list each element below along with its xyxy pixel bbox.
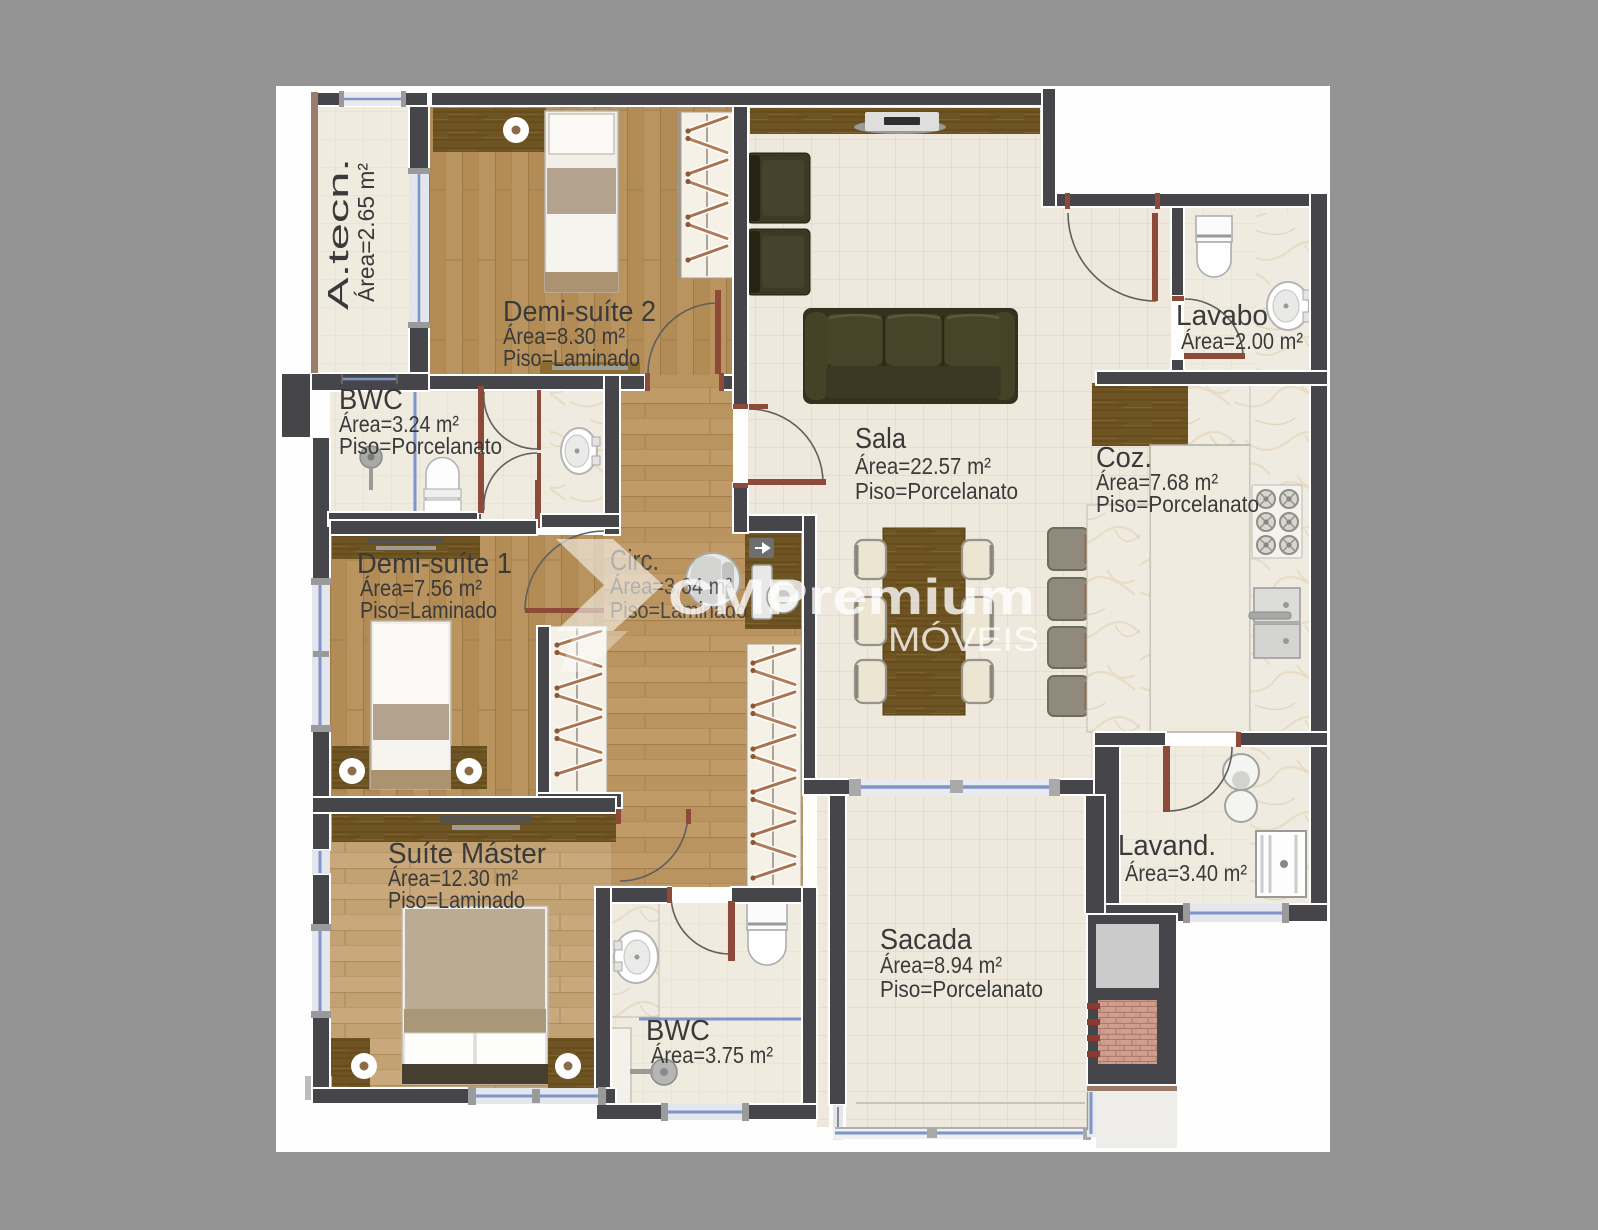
svg-text:Área=22.57 m²: Área=22.57 m² [855,453,991,479]
svg-text:MÓVEIS: MÓVEIS [888,621,1039,659]
svg-text:Lavand.: Lavand. [1118,830,1216,862]
svg-text:Piso=Porcelanato: Piso=Porcelanato [339,433,502,459]
svg-text:CMPremium: CMPremium [668,569,1035,625]
svg-text:Área=3.40 m²: Área=3.40 m² [1125,860,1247,886]
svg-text:Sala: Sala [855,423,907,455]
svg-text:Piso=Porcelanato: Piso=Porcelanato [1096,491,1259,517]
svg-text:Piso=Porcelanato: Piso=Porcelanato [880,976,1043,1002]
svg-text:Piso=Porcelanato: Piso=Porcelanato [855,478,1018,504]
svg-text:Área=8.94 m²: Área=8.94 m² [880,952,1002,978]
svg-text:Piso=Laminado: Piso=Laminado [503,345,640,371]
svg-text:A.tecn.: A.tecn. [323,158,355,310]
svg-text:Área=3.75 m²: Área=3.75 m² [651,1042,773,1068]
svg-text:Área=2.00 m²: Área=2.00 m² [1181,328,1303,354]
svg-text:Piso=Laminado: Piso=Laminado [388,887,525,913]
svg-text:Piso=Laminado: Piso=Laminado [360,597,497,623]
svg-text:Área=2.65 m²: Área=2.65 m² [353,163,379,302]
